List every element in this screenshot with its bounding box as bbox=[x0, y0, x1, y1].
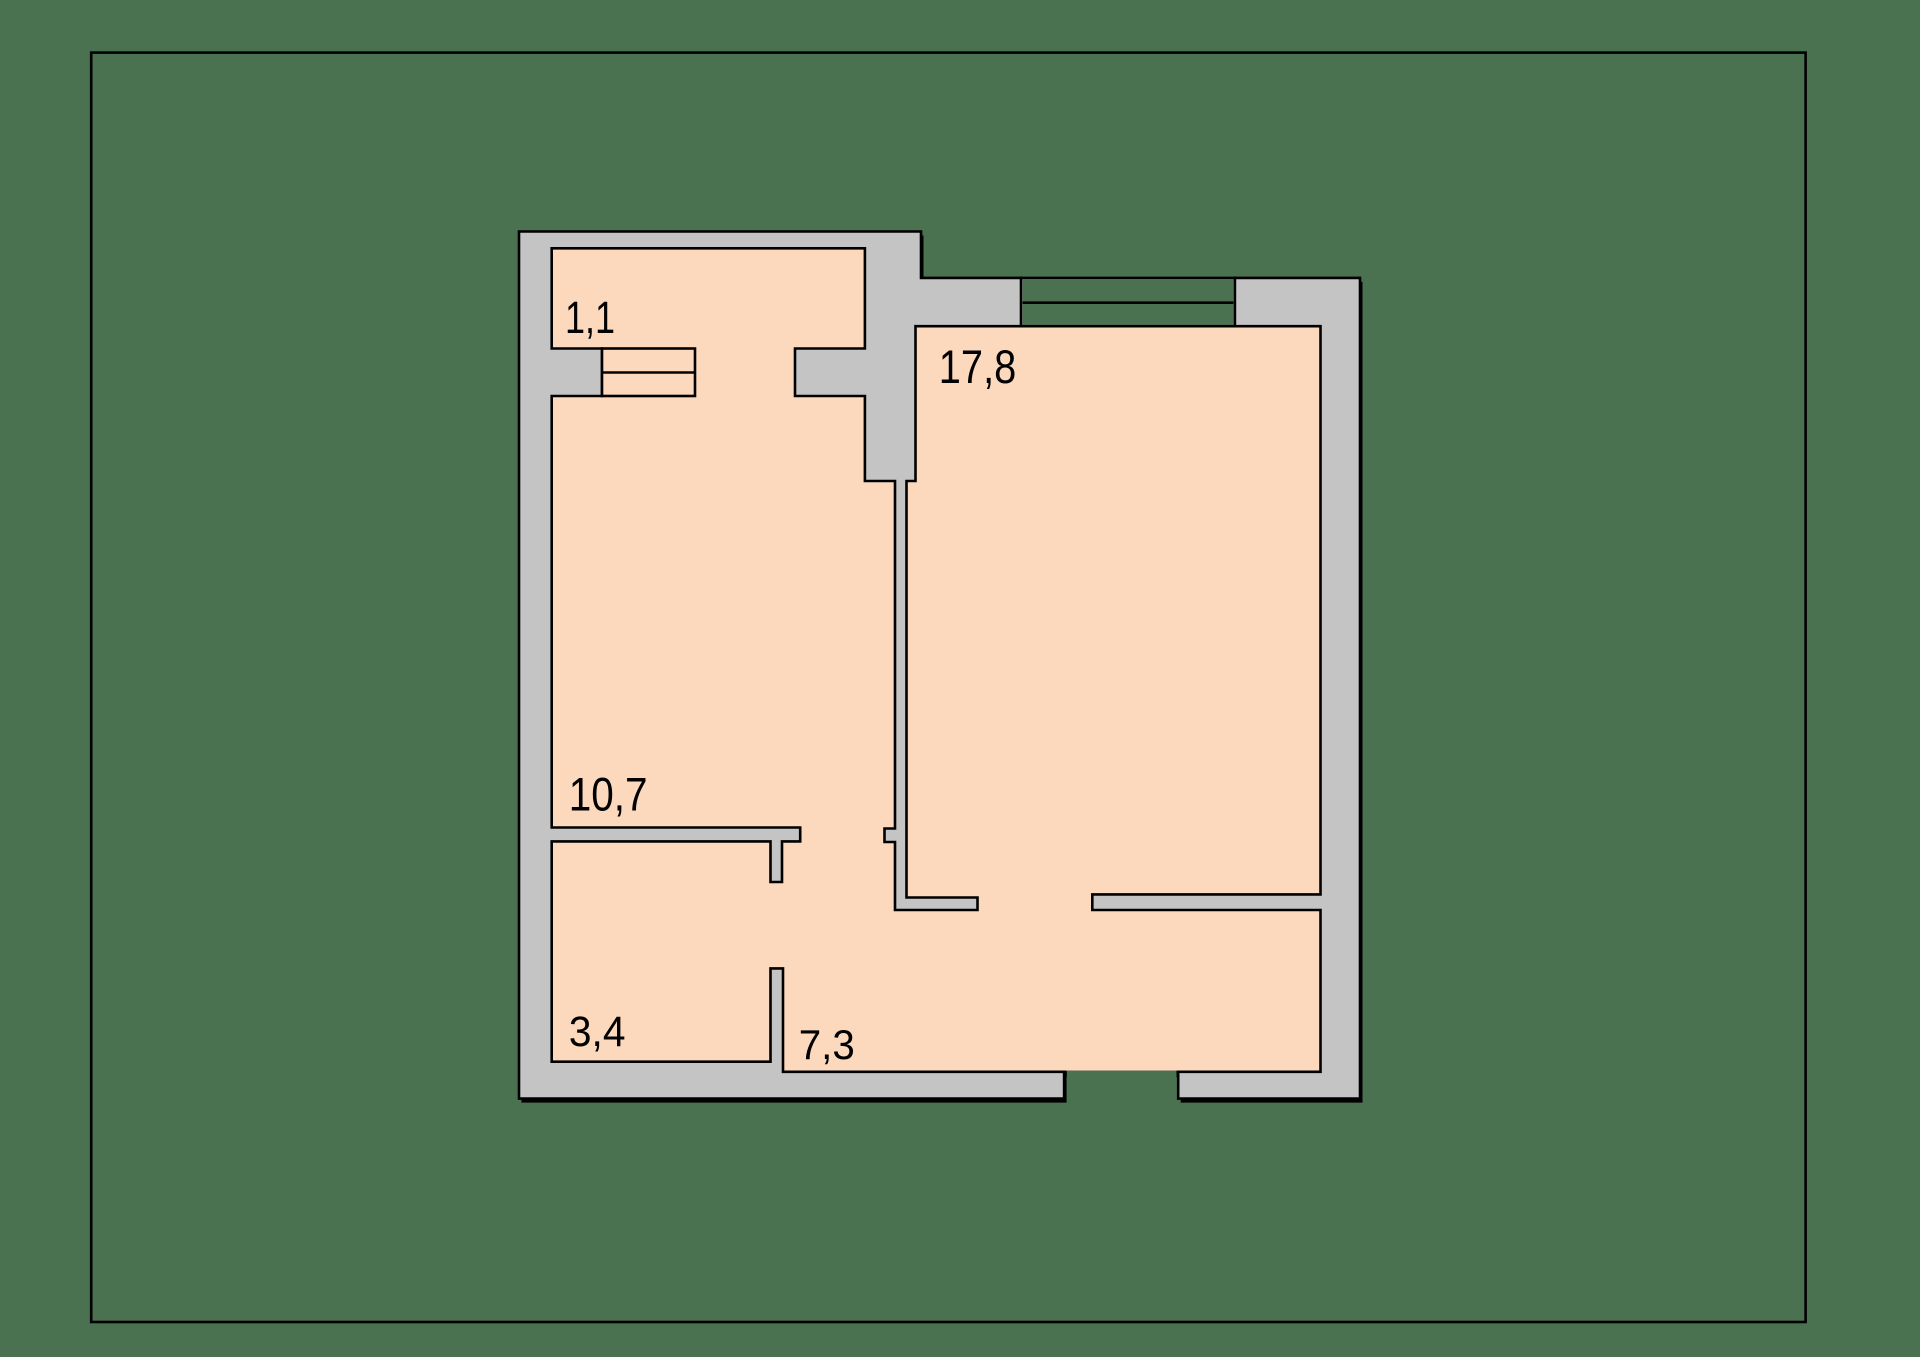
svg-text:10,7: 10,7 bbox=[569, 769, 648, 822]
svg-text:3,4: 3,4 bbox=[569, 1007, 626, 1055]
svg-text:1,1: 1,1 bbox=[565, 292, 615, 343]
svg-text:7,3: 7,3 bbox=[799, 1021, 855, 1068]
svg-text:17,8: 17,8 bbox=[939, 341, 1016, 394]
